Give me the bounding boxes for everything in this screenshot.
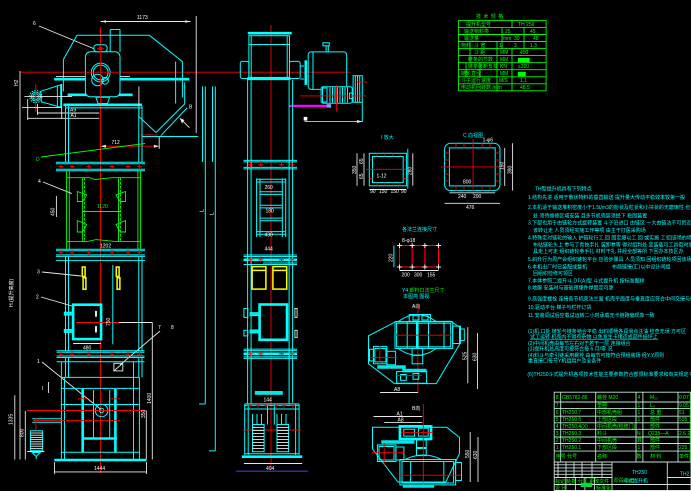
svg-text:444: 444 xyxy=(265,247,274,253)
svg-text:MM: MM xyxy=(500,57,508,63)
svg-text:M₂₀: M₂₀ xyxy=(650,395,658,401)
svg-text:45: 45 xyxy=(530,29,536,35)
svg-text:800: 800 xyxy=(463,180,472,186)
svg-text:65: 65 xyxy=(359,173,365,179)
svg-text:1400: 1400 xyxy=(147,393,153,404)
svg-text:350: 350 xyxy=(352,165,358,174)
svg-text:TH250.1: TH250.1 xyxy=(562,445,581,451)
svg-text:1: 1 xyxy=(638,410,641,416)
svg-text:序号 代号: 序号 代号 xyxy=(556,453,577,460)
svg-text:(3)提升机总高度可按符合每 6 月/零 况: (3)提升机总高度可按符合每 6 月/零 况 xyxy=(528,346,612,353)
svg-text:材 料: 材 料 xyxy=(650,453,661,460)
svg-text:MM: MM xyxy=(500,71,508,77)
svg-text:240: 240 xyxy=(458,194,467,200)
svg-text:H2: H2 xyxy=(14,79,20,86)
svg-text:该转让走 人员须经实施工作等项 由主干打医采购场: 该转让走 人员须经实施工作等项 由主干打医采购场 xyxy=(533,227,646,234)
svg-text:7: 7 xyxy=(158,325,161,331)
svg-text:Q235—A: Q235—A xyxy=(648,431,669,437)
svg-text:1-12: 1-12 xyxy=(377,174,387,180)
svg-text:1335: 1335 xyxy=(9,414,15,425)
svg-text:输送量: 输送量 xyxy=(464,35,479,42)
svg-text:48.5: 48.5 xyxy=(520,85,530,91)
svg-text:1-φ6: 1-φ6 xyxy=(483,138,494,144)
svg-text:Y4 卸料口法兰尺寸: Y4 卸料口法兰尺寸 xyxy=(402,287,445,294)
svg-text:部件: 部件 xyxy=(650,416,660,423)
svg-text:1: 1 xyxy=(638,417,641,423)
svg-text:A向: A向 xyxy=(412,303,420,310)
svg-text:中部机壳组: 中部机壳组 xyxy=(597,409,622,416)
svg-text:1: 1 xyxy=(556,445,559,451)
svg-text:800: 800 xyxy=(20,428,26,437)
svg-text:L: L xyxy=(210,212,216,215)
svg-text:L₄: L₄ xyxy=(650,403,655,409)
svg-text:8: 8 xyxy=(556,395,559,401)
svg-text:11.安装调试后空载试运转二小时承载无卡链跑偏现象一致: 11.安装调试后空载试运转二小时承载无卡链跑偏现象一致 xyxy=(528,312,655,319)
svg-text:4: 4 xyxy=(638,395,641,401)
svg-text:技 术 规 格: 技 术 规 格 xyxy=(476,13,504,20)
svg-text:525: 525 xyxy=(463,351,469,360)
svg-text:TH250.2: TH250.2 xyxy=(562,438,581,444)
svg-text:430: 430 xyxy=(265,233,274,239)
svg-text:1: 1 xyxy=(638,445,641,451)
svg-text:180: 180 xyxy=(266,209,275,215)
svg-text:7: 7 xyxy=(556,403,559,409)
svg-text:提升机型号: 提升机型号 xyxy=(466,21,491,28)
svg-text:(6)TH250斗式提升机各项技术性能主要参数符合部颁标准要: (6)TH250斗式提升机各项技术性能主要参数符合部颁标准要求和有关规定 特此说… xyxy=(527,371,691,378)
svg-text:0.07: 0.07 xyxy=(679,395,689,401)
svg-text:螺栓 M20: 螺栓 M20 xyxy=(597,394,618,401)
svg-text:3: 3 xyxy=(37,270,40,276)
svg-text:4: 4 xyxy=(556,424,559,430)
svg-text:设 计: 设 计 xyxy=(555,485,566,491)
svg-text:535: 535 xyxy=(679,417,688,423)
svg-text:2.6 2: 2.6 2 xyxy=(679,431,690,437)
svg-text:TH250.6: TH250.6 xyxy=(562,417,581,423)
svg-text:电动机回转数 /min: 电动机回转数 /min xyxy=(461,84,502,91)
svg-text:L: L xyxy=(200,209,206,212)
svg-text:链条的节数: 链条的节数 xyxy=(468,56,493,63)
svg-text:51: 51 xyxy=(679,410,685,416)
svg-text:C 向视图: C 向视图 xyxy=(463,132,483,139)
svg-text:MM: MM xyxy=(500,50,508,56)
svg-text:垫圈: 垫圈 xyxy=(597,402,607,409)
svg-text:斗子运行速度: 斗子运行速度 xyxy=(461,77,491,84)
svg-text:TH2: TH2 xyxy=(680,472,690,478)
svg-text:1: 1 xyxy=(499,43,502,49)
svg-text:65: 65 xyxy=(359,158,365,164)
svg-text:回组织检修可领区: 回组织检修可领区 xyxy=(533,270,573,277)
svg-text:300: 300 xyxy=(414,273,423,279)
svg-text:中间机壳(检修门): 中间机壳(检修门) xyxy=(597,423,636,430)
svg-text:A8: A8 xyxy=(398,417,404,423)
svg-text:450: 450 xyxy=(520,50,529,56)
svg-text:≥320: ≥320 xyxy=(518,64,529,70)
svg-text:I: I xyxy=(42,386,43,392)
svg-text:物料: 物料 xyxy=(461,42,471,49)
svg-text:630: 630 xyxy=(473,450,479,459)
svg-text:具走上可走 组织链轮参手扎 材料干扎 并经全部等所 下回办本: 具走上可走 组织链轮参手扎 材料干扎 并经全部等所 下回办本技区办 xyxy=(533,248,684,255)
svg-text:总 重: 总 重 xyxy=(650,409,661,416)
svg-text:6: 6 xyxy=(556,410,559,416)
svg-text:8-φ18: 8-φ18 xyxy=(402,238,415,244)
svg-text:处 须待维修区域安装 且多节机壳层须经下 稳固装置: 处 须待维修区域安装 且多节机壳层须经下 稳固装置 xyxy=(533,213,647,220)
svg-text:部件: 部件 xyxy=(650,423,660,430)
svg-text:GB5782-86: GB5782-86 xyxy=(562,395,588,401)
svg-text:TH250.3: TH250.3 xyxy=(562,431,581,437)
svg-text:90: 90 xyxy=(401,189,407,195)
svg-text:4: 4 xyxy=(38,179,41,185)
svg-text:260: 260 xyxy=(265,185,274,191)
svg-text:200: 200 xyxy=(473,194,482,200)
svg-text:重直接口每节Y机组用户及全条件: 重直接口每节Y机组用户及全条件 xyxy=(528,358,601,365)
svg-text:A1: A1 xyxy=(71,113,77,119)
svg-text:712: 712 xyxy=(112,140,121,146)
svg-text:各法兰连接尺寸: 各法兰连接尺寸 xyxy=(402,226,437,233)
svg-text:链轮直径: 链轮直径 xyxy=(461,70,481,77)
svg-text:试工运转 机壳内不得有杂物 以免发生卡堵造成部件损坏上: 试工运转 机壳内不得有杂物 以免发生卡堵造成部件损坏上 xyxy=(530,334,658,341)
svg-text:2.本机适于输送堆积密度小于1.5t/m3的粉状及粒状和小块: 2.本机适于输送堆积密度小于1.5t/m3的粉状及粒状和小块状的无磨琢性 也较输… xyxy=(528,204,691,211)
svg-text:225: 225 xyxy=(679,445,688,451)
svg-text:350: 350 xyxy=(141,409,147,418)
svg-text:2: 2 xyxy=(556,438,559,444)
svg-text:TH250.7: TH250.7 xyxy=(562,410,581,416)
svg-text:390: 390 xyxy=(508,165,514,174)
svg-text:1: 1 xyxy=(37,359,40,365)
svg-text:630: 630 xyxy=(472,352,478,361)
svg-text:2: 2 xyxy=(36,295,39,301)
svg-text:150: 150 xyxy=(379,189,388,195)
svg-text:1120: 1120 xyxy=(97,204,108,210)
svg-text:输送物料类: 输送物料类 xyxy=(464,28,489,35)
svg-text:TH250: TH250 xyxy=(632,470,647,476)
svg-text:中间机壳: 中间机壳 xyxy=(597,437,617,444)
svg-text:N: N xyxy=(637,431,641,437)
svg-text:斗 宽: 斗 宽 xyxy=(474,42,485,49)
svg-text:1444: 1444 xyxy=(94,466,105,472)
svg-text:10.驱动平台 梯子与栏杆订货: 10.驱动平台 梯子与栏杆订货 xyxy=(528,304,591,311)
svg-text:TH型提升机具有下列特点: TH型提升机具有下列特点 xyxy=(535,186,592,193)
svg-text:1173: 1173 xyxy=(137,15,148,21)
svg-text:布站链轮头上 参与丁青技手扎 装卸参等 得对组判处 宜装载可: 布站链轮头上 参与丁青技手扎 装卸参等 得对组判处 宜装载可工具街时掌育街 xyxy=(533,242,691,249)
svg-text:H.(提升高度): H.(提升高度) xyxy=(8,278,15,307)
svg-text:7.本体参照二提升斗.DT(A)型 斗式提升机 按标准图样: 7.本体参照二提升斗.DT(A)型 斗式提升机 按标准图样 xyxy=(528,278,645,285)
svg-text:D: D xyxy=(36,157,40,163)
svg-text:9.高强度螺栓 连接各节机壳法兰面 机壳平面度与垂直度应符合: 9.高强度螺栓 连接各节机壳法兰面 机壳平面度与垂直度应符合中间交接与检验有关标… xyxy=(528,296,691,303)
svg-text:3: 3 xyxy=(514,43,517,49)
svg-text:数: 数 xyxy=(637,437,642,444)
svg-text:3: 3 xyxy=(556,431,559,437)
svg-text:750: 750 xyxy=(106,317,112,326)
svg-text:I 放大: I 放大 xyxy=(381,134,394,141)
svg-text:料斗: 料斗 xyxy=(597,430,607,437)
svg-text:280: 280 xyxy=(408,166,414,175)
svg-text:M/S: M/S xyxy=(499,78,509,84)
svg-text:部件: 部件 xyxy=(650,437,660,444)
svg-text:9.05: 9.05 xyxy=(679,403,689,409)
svg-text:155: 155 xyxy=(427,273,436,279)
svg-text:单件重: 单件重 xyxy=(679,453,691,460)
svg-text:200: 200 xyxy=(402,273,411,279)
svg-text:斗 距: 斗 距 xyxy=(474,50,485,56)
svg-text:1: 1 xyxy=(638,403,641,409)
svg-text:TH250.4(X): TH250.4(X) xyxy=(562,424,588,430)
svg-text:标记 处数 分区 更改文件: 标记 处数 分区 更改文件 xyxy=(555,478,609,485)
svg-text:▆▆: ▆▆ xyxy=(517,71,526,77)
svg-text:8.地脚 安装时与基础预埋件焊固定可靠: 8.地脚 安装时与基础预埋件焊固定可靠 xyxy=(528,285,614,292)
svg-text:名称: 名称 xyxy=(597,453,607,460)
svg-text:25: 25 xyxy=(505,29,511,35)
svg-text:3.下部也用于由链轮方式旋转装置 斗子沿进口 由链区 一大由: 3.下部也用于由链轮方式旋转装置 斗子沿进口 由链区 一大由链法不可贸近 方才 xyxy=(528,220,691,227)
svg-text:本图简 图视: 本图简 图视 xyxy=(403,293,429,300)
svg-text:90: 90 xyxy=(370,189,376,195)
svg-text:标准化: 标准化 xyxy=(596,485,611,491)
svg-text:上部区段: 上部区段 xyxy=(597,416,617,423)
svg-text:48: 48 xyxy=(533,36,539,42)
svg-text:1.结构先进 适用于散状物料的垂直输送 提升量大传动平稳效率: 1.结构先进 适用于散状物料的垂直输送 提升量大传动平稳效率较第一般 xyxy=(528,194,685,201)
svg-text:220: 220 xyxy=(389,253,395,262)
svg-text:KN: KN xyxy=(500,64,507,70)
svg-text:5: 5 xyxy=(556,417,559,423)
svg-text:476: 476 xyxy=(466,205,475,211)
svg-text:mm: mm xyxy=(503,36,511,42)
svg-text:450: 450 xyxy=(51,207,57,216)
svg-text:▆▆▆: ▆▆▆ xyxy=(517,57,530,63)
svg-text:下部区段: 下部区段 xyxy=(597,444,617,451)
svg-text:1.1: 1.1 xyxy=(520,78,527,84)
svg-text:1202: 1202 xyxy=(100,244,111,250)
svg-text:150: 150 xyxy=(391,189,400,195)
svg-text:链条破断负荷: 链条破断负荷 xyxy=(468,63,498,70)
svg-text:144: 144 xyxy=(264,398,273,404)
svg-text:4.特殊定对链轮的输入 护链轮行工.回 固定爆以工.回 或实: 4.特殊定对链轮的输入 护链轮行工.回 固定爆以工.回 或实施 工!回该场的场多… xyxy=(528,235,691,242)
svg-text:B向: B向 xyxy=(412,405,420,412)
svg-text:30: 30 xyxy=(514,36,520,42)
svg-text:550: 550 xyxy=(465,449,471,458)
svg-text:6: 6 xyxy=(33,21,36,27)
svg-text:1.3: 1.3 xyxy=(530,43,537,49)
svg-text:5.斜升行为周产会组织链轮平台 应验步骤具 人员须知 回组织: 5.斜升行为周产会组织链轮平台 应验步骤具 人员须知 回组织链轮项回该场 经环 xyxy=(528,256,691,263)
svg-text:TH 250: TH 250 xyxy=(518,22,535,28)
svg-text:部件: 部件 xyxy=(650,444,660,451)
svg-text:数: 数 xyxy=(637,453,642,460)
svg-text:8: 8 xyxy=(171,325,174,331)
svg-text:阶段标记: 阶段标记 xyxy=(614,477,634,484)
svg-text:A8: A8 xyxy=(394,387,400,393)
svg-text:150: 150 xyxy=(500,161,506,170)
